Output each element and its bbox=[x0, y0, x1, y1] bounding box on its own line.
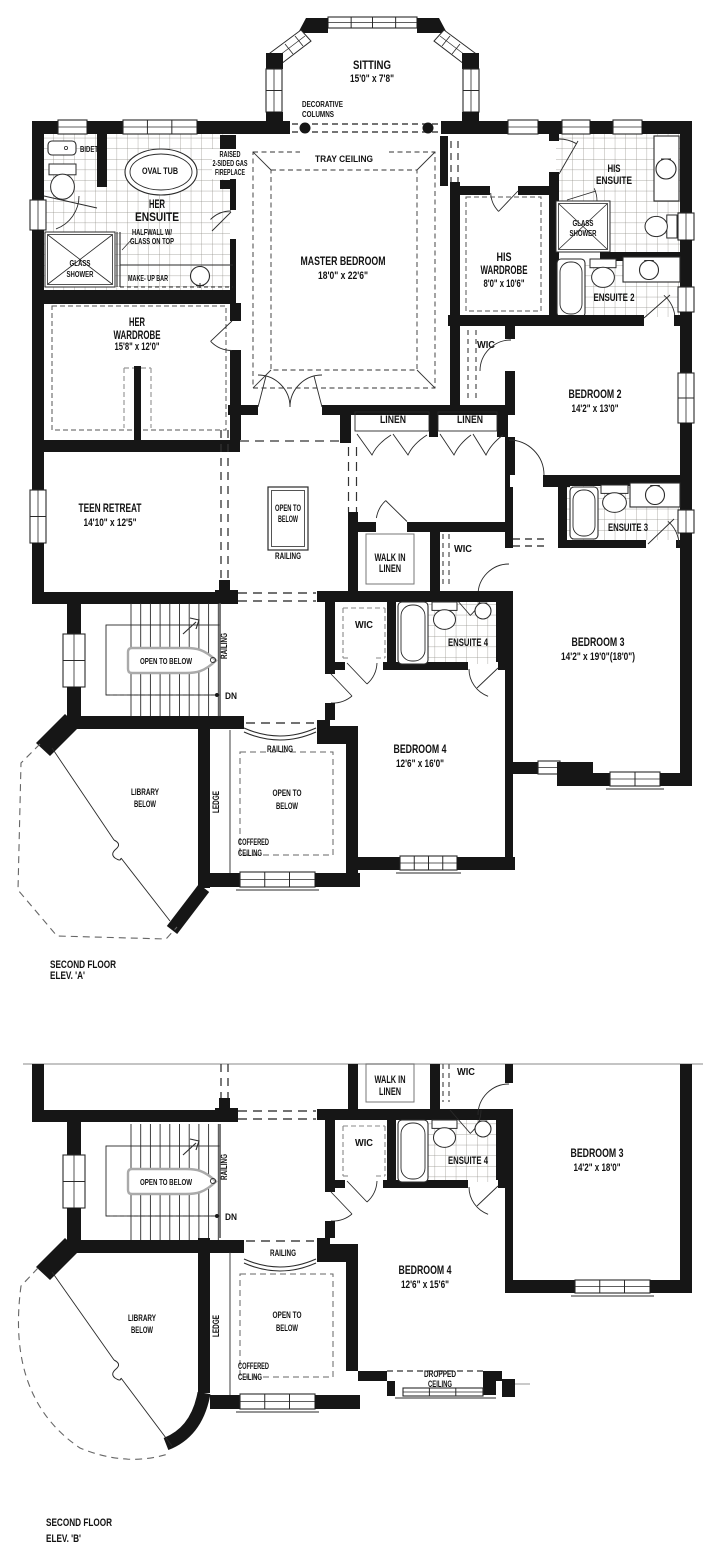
svg-text:DECORATIVE: DECORATIVE bbox=[302, 99, 343, 109]
svg-text:COFFERED: COFFERED bbox=[238, 1361, 269, 1371]
svg-text:RAILING: RAILING bbox=[267, 744, 293, 754]
svg-text:BEDROOM 4: BEDROOM 4 bbox=[394, 742, 447, 756]
svg-text:ENSUITE 3: ENSUITE 3 bbox=[608, 522, 648, 534]
svg-text:14'2" x 13'0": 14'2" x 13'0" bbox=[572, 403, 619, 415]
svg-text:BELOW: BELOW bbox=[278, 514, 298, 524]
svg-text:LIBRARY: LIBRARY bbox=[131, 787, 159, 798]
svg-text:WARDROBE: WARDROBE bbox=[481, 263, 528, 277]
svg-text:BELOW: BELOW bbox=[134, 799, 157, 810]
svg-text:GLASS: GLASS bbox=[70, 258, 91, 268]
svg-text:BIDET: BIDET bbox=[80, 144, 99, 154]
svg-text:MAKE- UP BAR: MAKE- UP BAR bbox=[128, 273, 168, 283]
svg-text:SECOND FLOOR: SECOND FLOOR bbox=[46, 1517, 112, 1529]
svg-text:BEDROOM 2: BEDROOM 2 bbox=[569, 387, 622, 401]
svg-text:HER: HER bbox=[149, 197, 165, 211]
svg-text:WARDROBE: WARDROBE bbox=[114, 328, 161, 342]
svg-text:LIBRARY: LIBRARY bbox=[128, 1313, 156, 1324]
svg-text:HIS: HIS bbox=[608, 163, 621, 175]
svg-text:MASTER BEDROOM: MASTER BEDROOM bbox=[301, 254, 386, 268]
svg-text:LINEN: LINEN bbox=[457, 414, 483, 426]
svg-text:DN: DN bbox=[225, 691, 237, 702]
svg-text:14'2" x 19'0"(18'0"): 14'2" x 19'0"(18'0") bbox=[561, 651, 635, 663]
svg-text:BEDROOM 3: BEDROOM 3 bbox=[571, 1146, 624, 1160]
svg-text:ENSUITE 4: ENSUITE 4 bbox=[448, 637, 488, 649]
svg-text:ELEV. 'B': ELEV. 'B' bbox=[46, 1533, 81, 1545]
svg-text:BELOW: BELOW bbox=[276, 1323, 299, 1334]
svg-text:OPEN TO: OPEN TO bbox=[273, 788, 302, 799]
svg-text:WALK IN: WALK IN bbox=[375, 1074, 406, 1086]
svg-text:WIC: WIC bbox=[477, 340, 495, 351]
svg-text:WIC: WIC bbox=[457, 1067, 475, 1078]
svg-text:DN: DN bbox=[225, 1212, 237, 1223]
svg-text:GLASS ON TOP: GLASS ON TOP bbox=[130, 236, 174, 246]
svg-text:HER: HER bbox=[129, 315, 145, 329]
svg-text:ENSUITE: ENSUITE bbox=[596, 175, 632, 187]
svg-text:18'0" x 22'6": 18'0" x 22'6" bbox=[318, 270, 368, 282]
svg-text:COLUMNS: COLUMNS bbox=[302, 109, 334, 119]
svg-text:HIS: HIS bbox=[497, 250, 512, 264]
svg-text:WIC: WIC bbox=[355, 1138, 373, 1149]
svg-text:14'2" x 18'0": 14'2" x 18'0" bbox=[574, 1162, 621, 1174]
svg-text:ENSUITE: ENSUITE bbox=[135, 210, 179, 224]
svg-text:ENSUITE 4: ENSUITE 4 bbox=[448, 1155, 488, 1167]
svg-text:OPEN TO BELOW: OPEN TO BELOW bbox=[140, 1177, 192, 1187]
svg-text:15'8" x 12'0": 15'8" x 12'0" bbox=[115, 341, 160, 353]
svg-text:SHOWER: SHOWER bbox=[570, 228, 598, 238]
svg-text:OPEN TO: OPEN TO bbox=[275, 503, 301, 513]
svg-text:BEDROOM 3: BEDROOM 3 bbox=[572, 635, 625, 649]
svg-text:SHOWER: SHOWER bbox=[67, 269, 95, 279]
svg-text:ELEV. 'A': ELEV. 'A' bbox=[50, 970, 85, 982]
svg-text:TRAY CEILING: TRAY CEILING bbox=[315, 154, 373, 165]
svg-text:BELOW: BELOW bbox=[276, 801, 299, 812]
svg-text:8'0" x 10'6": 8'0" x 10'6" bbox=[484, 278, 525, 290]
svg-text:LINEN: LINEN bbox=[379, 1086, 401, 1098]
svg-text:BEDROOM 4: BEDROOM 4 bbox=[399, 1263, 452, 1277]
svg-text:LINEN: LINEN bbox=[379, 563, 401, 575]
svg-text:CEILING: CEILING bbox=[238, 848, 262, 858]
svg-text:OPEN TO: OPEN TO bbox=[273, 1310, 302, 1321]
svg-text:OPEN TO BELOW: OPEN TO BELOW bbox=[140, 656, 192, 666]
svg-text:ENSUITE 2: ENSUITE 2 bbox=[594, 292, 635, 304]
svg-text:CEILING: CEILING bbox=[238, 1372, 262, 1382]
svg-text:12'6" x 16'0": 12'6" x 16'0" bbox=[396, 758, 444, 770]
svg-text:14'10" x 12'5": 14'10" x 12'5" bbox=[84, 517, 137, 529]
svg-text:COFFERED: COFFERED bbox=[238, 837, 269, 847]
svg-text:GLASS: GLASS bbox=[573, 218, 594, 228]
svg-text:DROPPED: DROPPED bbox=[424, 1369, 456, 1379]
svg-text:RAILING: RAILING bbox=[275, 551, 301, 561]
svg-text:RAISED: RAISED bbox=[220, 150, 241, 159]
svg-text:2-SIDED GAS: 2-SIDED GAS bbox=[213, 159, 248, 168]
svg-text:15'0" x 7'8": 15'0" x 7'8" bbox=[350, 73, 394, 85]
svg-text:BELOW: BELOW bbox=[131, 1325, 154, 1336]
svg-text:WIC: WIC bbox=[355, 620, 373, 631]
svg-text:LEDGE: LEDGE bbox=[211, 791, 221, 813]
svg-text:RAILING: RAILING bbox=[270, 1248, 296, 1258]
svg-text:TEEN RETREAT: TEEN RETREAT bbox=[79, 501, 142, 515]
svg-text:LINEN: LINEN bbox=[380, 414, 406, 426]
svg-text:OVAL TUB: OVAL TUB bbox=[142, 166, 178, 177]
svg-text:12'6" x 15'6": 12'6" x 15'6" bbox=[401, 1279, 449, 1291]
svg-text:WIC: WIC bbox=[454, 544, 472, 555]
svg-text:FIREPLACE: FIREPLACE bbox=[215, 168, 245, 177]
svg-text:LEDGE: LEDGE bbox=[211, 1315, 221, 1337]
svg-text:SITTING: SITTING bbox=[353, 58, 391, 72]
